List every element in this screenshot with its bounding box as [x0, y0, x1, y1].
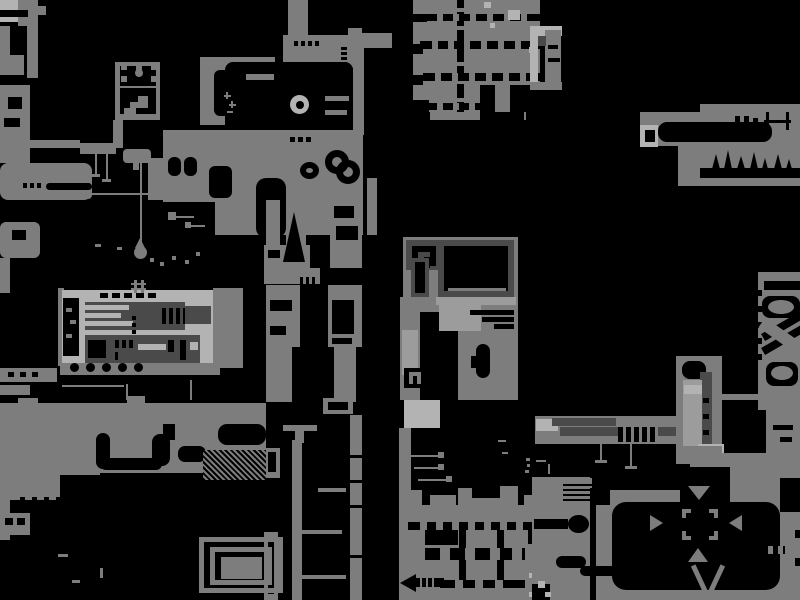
- map-shape: [301, 530, 342, 534]
- map-shape: [678, 446, 722, 464]
- map-shape: [618, 427, 623, 442]
- map-shape: [795, 500, 800, 508]
- map-shape: [68, 497, 73, 504]
- map-shape: [268, 250, 280, 258]
- map-shape: [413, 75, 423, 85]
- map-shape: [414, 467, 440, 469]
- map-shape: [658, 427, 678, 436]
- map-shape: [209, 166, 232, 198]
- map-shape: [185, 306, 211, 324]
- map-shape: [121, 76, 127, 82]
- map-shape: [420, 41, 540, 49]
- game-map-screen: [0, 0, 800, 600]
- map-shape: [32, 497, 37, 504]
- map-shape: [744, 116, 749, 126]
- map-shape: [502, 452, 508, 454]
- map-shape: [122, 340, 126, 348]
- map-shape: [12, 230, 26, 240]
- map-shape: [413, 100, 429, 112]
- map-shape: [140, 155, 142, 247]
- map-shape: [350, 555, 362, 558]
- map-shape: [684, 385, 702, 394]
- map-shape: [540, 48, 545, 70]
- map-shape: [66, 308, 72, 312]
- map-shape: [548, 45, 558, 49]
- map-shape: [102, 363, 111, 372]
- map-shape: [296, 101, 304, 109]
- map-shape: [134, 363, 143, 372]
- map-shape: [283, 35, 353, 65]
- map-shape: [133, 163, 139, 170]
- map-shape: [336, 226, 358, 240]
- map-shape: [131, 283, 146, 285]
- map-shape: [341, 52, 347, 55]
- map-shape: [328, 402, 348, 410]
- map-shape: [129, 340, 133, 348]
- map-shape: [737, 156, 745, 169]
- map-shape: [786, 159, 792, 169]
- map-shape: [438, 464, 444, 470]
- map-shape: [426, 574, 428, 591]
- map-shape: [44, 497, 49, 504]
- map-shape: [526, 458, 530, 461]
- map-shape: [527, 464, 530, 467]
- map-shape: [642, 427, 647, 442]
- map-shape: [353, 35, 364, 135]
- map-shape: [758, 338, 762, 344]
- map-shape: [425, 530, 458, 545]
- map-shape: [758, 290, 762, 296]
- map-shape: [95, 152, 97, 174]
- map-shape: [494, 324, 514, 329]
- map-shape: [350, 455, 362, 458]
- map-shape: [218, 424, 266, 445]
- map-shape: [341, 57, 347, 60]
- map-shape: [652, 576, 682, 590]
- map-shape: [124, 108, 136, 114]
- map-shape: [682, 509, 686, 518]
- map-shape: [4, 118, 20, 127]
- map-shape: [190, 380, 192, 400]
- map-shape: [163, 424, 175, 440]
- map-shape: [106, 152, 108, 179]
- map-shape: [768, 300, 794, 314]
- map-shape: [32, 372, 38, 377]
- map-shape: [113, 120, 123, 148]
- map-shape: [132, 316, 136, 320]
- map-shape: [58, 554, 68, 557]
- map-shape: [148, 293, 156, 298]
- map-shape: [283, 212, 305, 262]
- map-shape: [246, 74, 274, 80]
- map-shape: [773, 425, 793, 430]
- map-shape: [634, 427, 639, 442]
- map-shape: [439, 303, 481, 331]
- map-shape: [430, 112, 480, 120]
- map-shape: [448, 41, 454, 49]
- map-shape: [266, 200, 280, 246]
- map-shape: [495, 85, 510, 112]
- map-shape: [469, 73, 475, 81]
- map-shape: [299, 575, 346, 579]
- map-shape: [538, 36, 546, 46]
- map-shape: [774, 154, 782, 169]
- map-shape: [530, 82, 562, 90]
- map-shape: [20, 497, 25, 504]
- map-shape: [455, 8, 466, 12]
- map-shape: [169, 308, 173, 324]
- map-shape: [312, 277, 315, 284]
- map-shape: [432, 41, 438, 49]
- map-shape: [459, 562, 466, 582]
- map-shape: [464, 41, 470, 49]
- map-shape: [134, 280, 137, 293]
- map-shape: [410, 455, 440, 457]
- map-shape: [196, 252, 200, 256]
- map-shape: [180, 340, 186, 360]
- map-shape: [764, 281, 800, 290]
- map-shape: [500, 486, 518, 506]
- map-shape: [213, 288, 243, 368]
- map-shape: [168, 212, 176, 220]
- map-shape: [0, 222, 40, 258]
- map-shape: [266, 285, 300, 347]
- map-shape: [438, 452, 444, 458]
- map-shape: [758, 306, 762, 312]
- map-shape: [498, 440, 506, 442]
- map-shape: [452, 73, 458, 81]
- map-shape: [231, 101, 233, 108]
- map-shape: [176, 216, 194, 218]
- map-shape: [318, 488, 346, 492]
- map-shape: [562, 478, 592, 488]
- map-shape: [486, 73, 492, 81]
- map-shape: [8, 372, 14, 377]
- map-shape: [308, 41, 312, 46]
- map-shape: [402, 490, 422, 505]
- map-shape: [448, 288, 506, 291]
- map-shape: [432, 574, 434, 591]
- map-shape: [5, 518, 13, 525]
- map-shape: [470, 310, 514, 315]
- map-shape: [568, 515, 589, 533]
- map-shape: [490, 23, 495, 28]
- map-shape: [712, 154, 720, 169]
- map-shape: [117, 247, 122, 250]
- map-shape: [112, 293, 120, 298]
- map-shape: [795, 530, 800, 538]
- map-shape: [645, 130, 655, 142]
- map-shape: [18, 140, 80, 148]
- map-shape: [430, 495, 456, 507]
- map-shape: [482, 317, 514, 322]
- map-shape: [80, 143, 116, 154]
- map-shape: [37, 183, 41, 188]
- map-shape: [315, 41, 319, 46]
- map-shape: [446, 476, 452, 482]
- map-shape: [563, 484, 593, 486]
- map-shape: [160, 262, 164, 266]
- map-shape: [290, 137, 295, 142]
- map-shape: [336, 160, 360, 184]
- map-shape: [516, 522, 523, 530]
- map-shape: [413, 14, 427, 22]
- map-shape: [515, 41, 521, 49]
- map-shape: [162, 308, 166, 324]
- map-shape: [435, 73, 441, 81]
- map-shape: [191, 225, 205, 227]
- map-shape: [72, 580, 80, 583]
- map-shape: [453, 14, 459, 21]
- map-shape: [413, 44, 423, 54]
- marker-arrow-right: [650, 515, 663, 531]
- map-shape: [484, 522, 491, 530]
- map-shape: [37, 6, 46, 15]
- map-shape: [468, 522, 475, 530]
- map-shape: [548, 464, 550, 474]
- map-shape: [141, 280, 144, 293]
- map-shape: [600, 444, 602, 460]
- map-shape: [123, 149, 151, 163]
- map-shape: [227, 111, 233, 113]
- map-shape: [132, 323, 136, 327]
- map-shape: [444, 246, 508, 291]
- map-shape: [545, 30, 561, 82]
- map-shape: [625, 466, 637, 469]
- map-shape: [62, 385, 124, 387]
- map-shape: [470, 498, 500, 508]
- map-shape: [626, 427, 631, 442]
- map-shape: [455, 98, 466, 102]
- map-shape: [100, 293, 108, 298]
- map-shape: [768, 546, 773, 554]
- map-shape: [548, 58, 560, 62]
- map-shape: [95, 244, 101, 247]
- map-shape: [538, 581, 545, 588]
- map-shape: [420, 574, 422, 591]
- map-shape: [332, 300, 354, 334]
- map-shape: [70, 320, 76, 324]
- map-shape: [465, 548, 475, 560]
- map-shape: [102, 179, 111, 182]
- map-shape: [325, 96, 349, 101]
- map-shape: [168, 157, 181, 176]
- map-shape: [470, 14, 476, 21]
- map-shape: [525, 470, 529, 473]
- map-shape: [771, 366, 793, 380]
- map-shape: [520, 73, 526, 81]
- map-shape: [700, 168, 800, 178]
- map-shape: [306, 137, 311, 142]
- map-shape: [703, 398, 709, 403]
- map-shape: [758, 354, 762, 360]
- map-shape: [481, 41, 487, 49]
- map-shape: [118, 363, 127, 372]
- map-shape: [735, 116, 740, 126]
- map-shape: [455, 580, 463, 588]
- map-shape: [560, 427, 618, 436]
- map-shape: [440, 548, 450, 560]
- map-shape: [536, 460, 546, 462]
- map-shape: [27, 26, 38, 78]
- map-shape: [325, 110, 347, 115]
- map-shape: [23, 183, 27, 188]
- map-shape: [453, 103, 459, 110]
- map-shape: [172, 256, 176, 260]
- map-shape: [471, 356, 481, 368]
- map-shape: [334, 206, 354, 218]
- map-shape: [127, 396, 145, 404]
- map-shape: [0, 258, 10, 293]
- map-shape: [455, 26, 466, 30]
- map-shape: [185, 260, 189, 264]
- map-shape: [0, 10, 28, 17]
- map-shape: [490, 548, 500, 560]
- map-shape: [270, 326, 286, 335]
- map-shape: [714, 509, 718, 518]
- map-shape: [563, 499, 593, 501]
- map-shape: [86, 363, 95, 372]
- map-shape: [52, 191, 92, 199]
- map-shape: [418, 479, 448, 481]
- map-shape: [545, 592, 551, 597]
- map-shape: [150, 258, 154, 262]
- map-shape: [20, 372, 26, 377]
- map-shape: [778, 546, 783, 554]
- map-shape: [124, 293, 132, 298]
- map-shape: [703, 414, 709, 419]
- map-shape: [452, 522, 459, 530]
- map-shape: [136, 293, 144, 298]
- map-shape: [18, 398, 38, 405]
- map-shape: [795, 558, 800, 566]
- map-shape: [0, 55, 24, 75]
- map-shape: [100, 568, 103, 578]
- map-shape: [8, 97, 22, 109]
- map-shape: [563, 489, 593, 491]
- map-shape: [367, 178, 377, 235]
- map-shape: [306, 277, 309, 284]
- map-shape: [135, 69, 143, 77]
- map-shape: [703, 430, 709, 435]
- marker-arrow-up: [688, 548, 708, 562]
- map-shape: [0, 385, 30, 395]
- map-shape: [73, 313, 121, 318]
- map-shape: [190, 342, 198, 350]
- map-shape: [762, 158, 768, 169]
- map-shape: [131, 288, 146, 290]
- map-shape: [475, 580, 483, 588]
- map-shape: [334, 347, 356, 402]
- map-shape: [753, 118, 758, 127]
- map-shape: [294, 41, 298, 46]
- map-shape: [498, 41, 504, 49]
- map-shape: [268, 452, 276, 472]
- map-shape: [91, 174, 100, 177]
- map-shape: [455, 62, 466, 66]
- map-shape: [595, 460, 607, 463]
- map-shape: [404, 400, 440, 428]
- map-shape: [288, 0, 308, 38]
- map-shape: [300, 277, 303, 284]
- map-shape: [17, 518, 25, 525]
- map-shape: [436, 522, 443, 530]
- map-shape: [750, 152, 758, 169]
- map-shape: [73, 305, 129, 310]
- map-shape: [300, 162, 319, 179]
- map-shape: [650, 427, 655, 442]
- map-shape: [341, 47, 347, 50]
- map-shape: [552, 418, 616, 426]
- map-shape: [70, 363, 79, 372]
- map-shape: [115, 340, 119, 348]
- map-shape: [630, 444, 632, 466]
- map-shape: [487, 14, 493, 21]
- map-shape: [270, 300, 292, 311]
- map-shape: [534, 519, 568, 529]
- map-shape: [530, 36, 538, 82]
- map-shape: [184, 157, 197, 176]
- map-shape: [508, 10, 520, 20]
- map-shape: [350, 480, 362, 483]
- map-shape: [437, 103, 443, 110]
- map-shape: [414, 578, 444, 587]
- map-shape: [46, 183, 92, 190]
- marker-arrow-left: [729, 515, 742, 531]
- map-shape: [298, 137, 303, 142]
- map-shape: [30, 183, 34, 188]
- map-shape: [780, 437, 792, 442]
- map-shape: [437, 14, 443, 21]
- map-shape: [151, 64, 157, 70]
- map-shape: [500, 522, 507, 530]
- map-shape: [413, 376, 417, 384]
- map-shape: [0, 475, 60, 500]
- map-shape: [132, 330, 136, 334]
- map-shape: [350, 505, 362, 508]
- map-shape: [88, 340, 106, 358]
- map-shape: [484, 2, 491, 8]
- map-shape: [503, 73, 509, 81]
- map-shape: [221, 557, 262, 579]
- map-shape: [151, 76, 157, 82]
- map-shape: [63, 298, 79, 356]
- map-shape: [301, 41, 305, 46]
- map-shape: [176, 308, 180, 324]
- map-shape: [497, 562, 504, 582]
- map-shape: [121, 64, 127, 70]
- map-shape: [415, 262, 425, 293]
- marker-arrow-down: [688, 486, 710, 500]
- map-shape: [495, 580, 503, 588]
- map-shape: [469, 103, 475, 110]
- map-shape: [563, 494, 593, 496]
- map-shape: [266, 347, 292, 402]
- map-shape: [521, 14, 527, 21]
- map-shape: [764, 120, 791, 123]
- noise-patch: [203, 450, 266, 480]
- map-shape: [66, 334, 72, 338]
- map-shape: [178, 446, 206, 462]
- map-shape: [332, 338, 352, 344]
- map-shape: [724, 150, 732, 169]
- map-shape: [73, 321, 133, 326]
- droplet: [134, 246, 147, 259]
- map-shape: [56, 497, 61, 504]
- map-shape: [682, 536, 691, 540]
- map-shape: [138, 344, 166, 350]
- map-shape: [512, 548, 522, 560]
